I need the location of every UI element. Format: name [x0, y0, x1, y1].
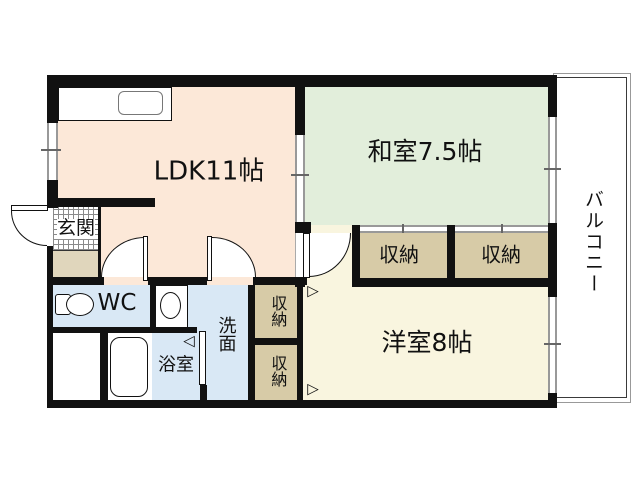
- closet-label: 収納: [269, 295, 286, 327]
- window-tick: [544, 168, 561, 170]
- door-leaf-wc: [143, 236, 148, 281]
- bathtub-icon: [110, 337, 148, 397]
- wall-closets-bottom: [352, 278, 557, 287]
- wall-entrance-edge: [98, 207, 101, 277]
- wall-ldk-washitsu-top: [295, 85, 305, 135]
- balcony-label: バルコニー: [582, 190, 602, 295]
- wall-bath-left: [100, 333, 108, 400]
- fusuma-tick: [501, 224, 503, 233]
- wall-ldk-washitsu-bottom: [295, 222, 311, 233]
- door-leaf-washroom: [207, 236, 212, 281]
- floor-plan: ▷ ▷ ◁ LDK11帖 和室7.5帖 洋室8帖 バルコニー 玄関 WC 洗面 …: [0, 0, 640, 480]
- entrance-step: [53, 251, 98, 277]
- japanese-room-label: 和室7.5帖: [368, 139, 483, 165]
- door-panel-bathroom: [199, 331, 206, 385]
- ldk-label: LDK11帖: [154, 158, 265, 185]
- sliding-door-ldk-washitsu: [295, 135, 305, 222]
- window-tick: [291, 174, 309, 176]
- wall-hall-b: [148, 277, 207, 285]
- utility-room-area: [53, 333, 100, 400]
- wall-bath-right: [200, 385, 207, 400]
- wall-closet-left: [352, 225, 360, 278]
- wall-hall-a: [52, 277, 104, 285]
- wall-right-top: [548, 75, 557, 117]
- kitchen-sink-icon: [118, 91, 163, 115]
- door-leaf-western-room: [303, 233, 310, 278]
- bathroom-label: 浴室: [158, 357, 194, 376]
- wall-hallcloset-divider: [248, 338, 303, 345]
- wall-bottom: [47, 400, 557, 408]
- wall-right-bottom: [548, 393, 557, 408]
- toilet-label: WC: [98, 291, 137, 315]
- window-tick: [544, 343, 561, 345]
- window-japanese-room-balcony: [548, 117, 557, 223]
- wall-left-upper: [47, 75, 58, 123]
- bathroom-door-arrow-icon: ◁: [183, 334, 195, 349]
- entrance-label: 玄関: [57, 219, 95, 239]
- closet-label: 収納: [481, 245, 521, 266]
- western-room-label: 洋室8帖: [382, 330, 473, 356]
- wall-entrance-top: [52, 198, 155, 207]
- window-tick: [41, 149, 61, 151]
- window-western-room-balcony: [548, 297, 557, 393]
- toilet-bowl-icon: [66, 293, 94, 316]
- door-leaf-front-entrance: [11, 205, 48, 211]
- closet-door-arrow-icon: ▷: [307, 284, 319, 299]
- washroom-label: 洗面: [216, 316, 235, 352]
- closet-label: 収納: [379, 245, 419, 266]
- fusuma-tick: [402, 224, 404, 233]
- closet-door-arrow-icon: ▷: [307, 382, 319, 397]
- window-ldk-left: [47, 123, 58, 180]
- closet-label: 収納: [269, 355, 286, 387]
- door-arc-front-entrance: [11, 211, 47, 246]
- wall-closet-divider: [447, 225, 455, 278]
- washbasin-icon: [160, 292, 181, 319]
